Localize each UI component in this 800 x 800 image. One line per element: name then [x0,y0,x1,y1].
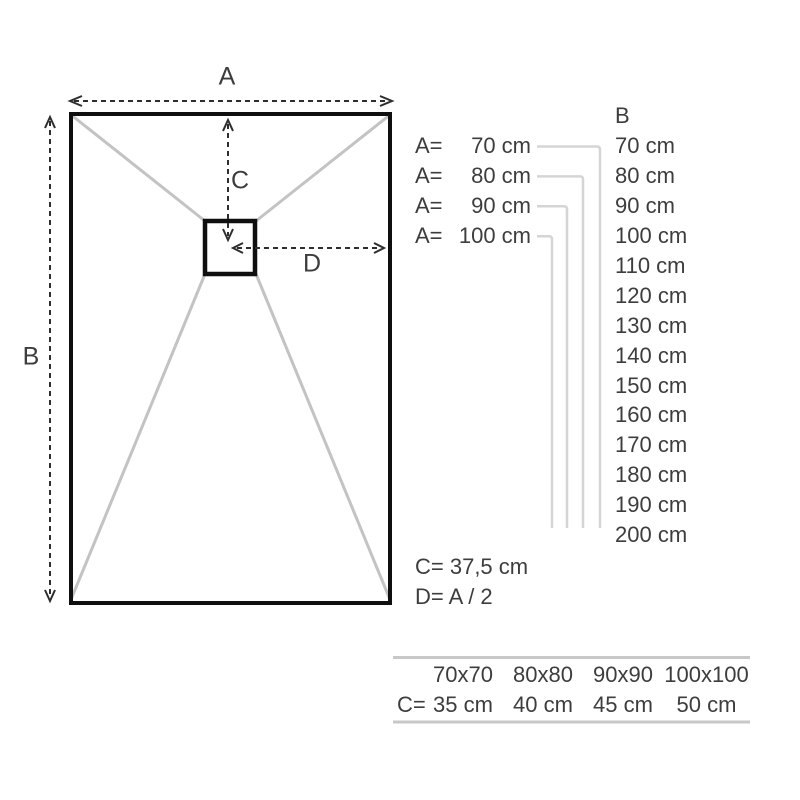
length-item: 170 cm [615,430,687,460]
width-option-prefix: A= [415,163,447,189]
width-leader-lines [537,147,600,529]
length-column-header: B [615,103,630,129]
length-item: 100 cm [615,221,687,251]
length-item: 120 cm [615,281,687,311]
length-item: 130 cm [615,311,687,341]
dim-label-a: A [219,63,236,92]
shower-tray-dimension-diagram: A B C D A= 70 cm A= 80 cm A= 90 cm A= 10… [0,0,800,800]
length-item: 180 cm [615,460,687,490]
dim-label-d: D [303,250,321,279]
length-item: 160 cm [615,401,687,431]
dim-label-c: C [231,167,249,196]
width-option-prefix: A= [415,223,447,249]
width-option-value: 100 cm [447,223,531,249]
width-option-value: 80 cm [447,163,531,189]
length-item: 200 cm [615,520,687,550]
square-sizes-table: 70x70 80x80 90x90 100x100 C= 35 cm 40 cm… [393,660,750,720]
size-cell: 80x80 [503,662,583,688]
c-value-cell: 35 cm [423,692,503,718]
dimension-arrows [45,96,392,601]
dim-a-arrow [70,96,392,106]
width-option-row: A= 70 cm [415,132,531,162]
formula-c: C= 37,5 cm [415,554,528,580]
dim-b-arrow [45,117,55,601]
square-sizes-c-row: C= 35 cm 40 cm 45 cm 50 cm [393,690,750,720]
width-option-value: 70 cm [447,133,531,159]
length-item: 110 cm [615,251,687,281]
length-item: 90 cm [615,191,687,221]
square-sizes-header-row: 70x70 80x80 90x90 100x100 [393,660,750,690]
width-option-row: A= 100 cm [415,221,531,251]
c-value-cell: 50 cm [663,692,750,718]
c-value-cell: 40 cm [503,692,583,718]
width-option-prefix: A= [415,133,447,159]
width-option-value: 90 cm [447,193,531,219]
size-cell: 90x90 [583,662,663,688]
formula-d: D= A / 2 [415,584,493,610]
width-option-row: A= 80 cm [415,161,531,191]
length-item: 80 cm [615,161,687,191]
length-item: 190 cm [615,490,687,520]
c-row-prefix: C= [393,692,423,718]
length-item: 70 cm [615,132,687,162]
length-column-list: 70 cm 80 cm 90 cm 100 cm 110 cm 120 cm 1… [615,132,687,550]
length-item: 140 cm [615,341,687,371]
size-cell: 70x70 [423,662,503,688]
c-value-cell: 45 cm [583,692,663,718]
width-option-prefix: A= [415,193,447,219]
dim-label-b: B [23,343,40,372]
width-options-list: A= 70 cm A= 80 cm A= 90 cm A= 100 cm [415,132,531,252]
length-item: 150 cm [615,371,687,401]
size-cell: 100x100 [663,662,750,688]
width-option-row: A= 90 cm [415,191,531,221]
